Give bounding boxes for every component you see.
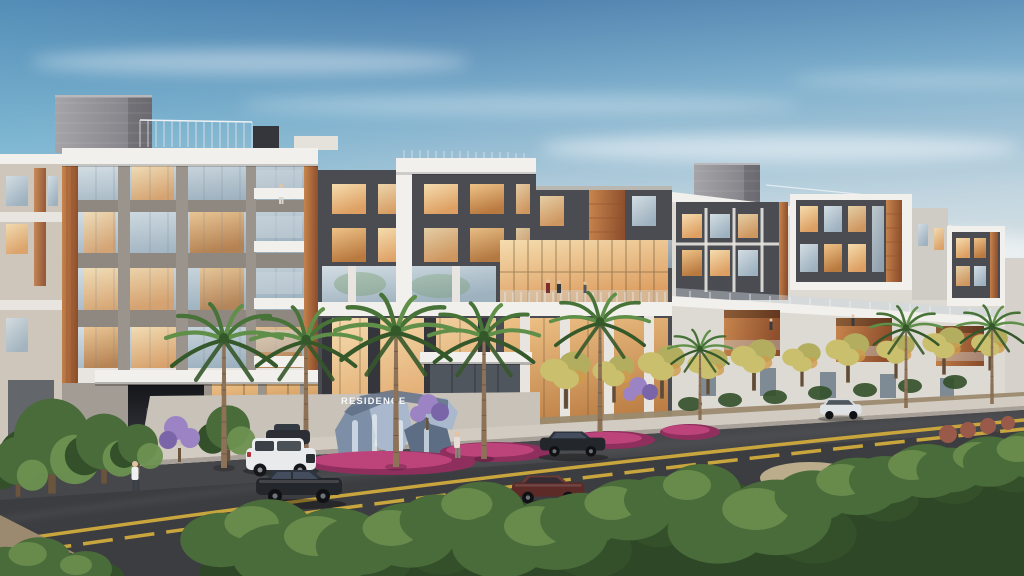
cornice-eyebrow [396, 158, 536, 174]
rendered-photo: Dusk rendering of a modern five-story mi… [0, 0, 1024, 576]
right-background-building [1005, 258, 1024, 398]
scene-canvas: RESIDENCE [0, 0, 1024, 576]
roof-cornice [62, 148, 318, 166]
roof-mechanical-box [253, 126, 279, 150]
suv-grille [306, 454, 315, 463]
entry-canopy [95, 370, 340, 384]
